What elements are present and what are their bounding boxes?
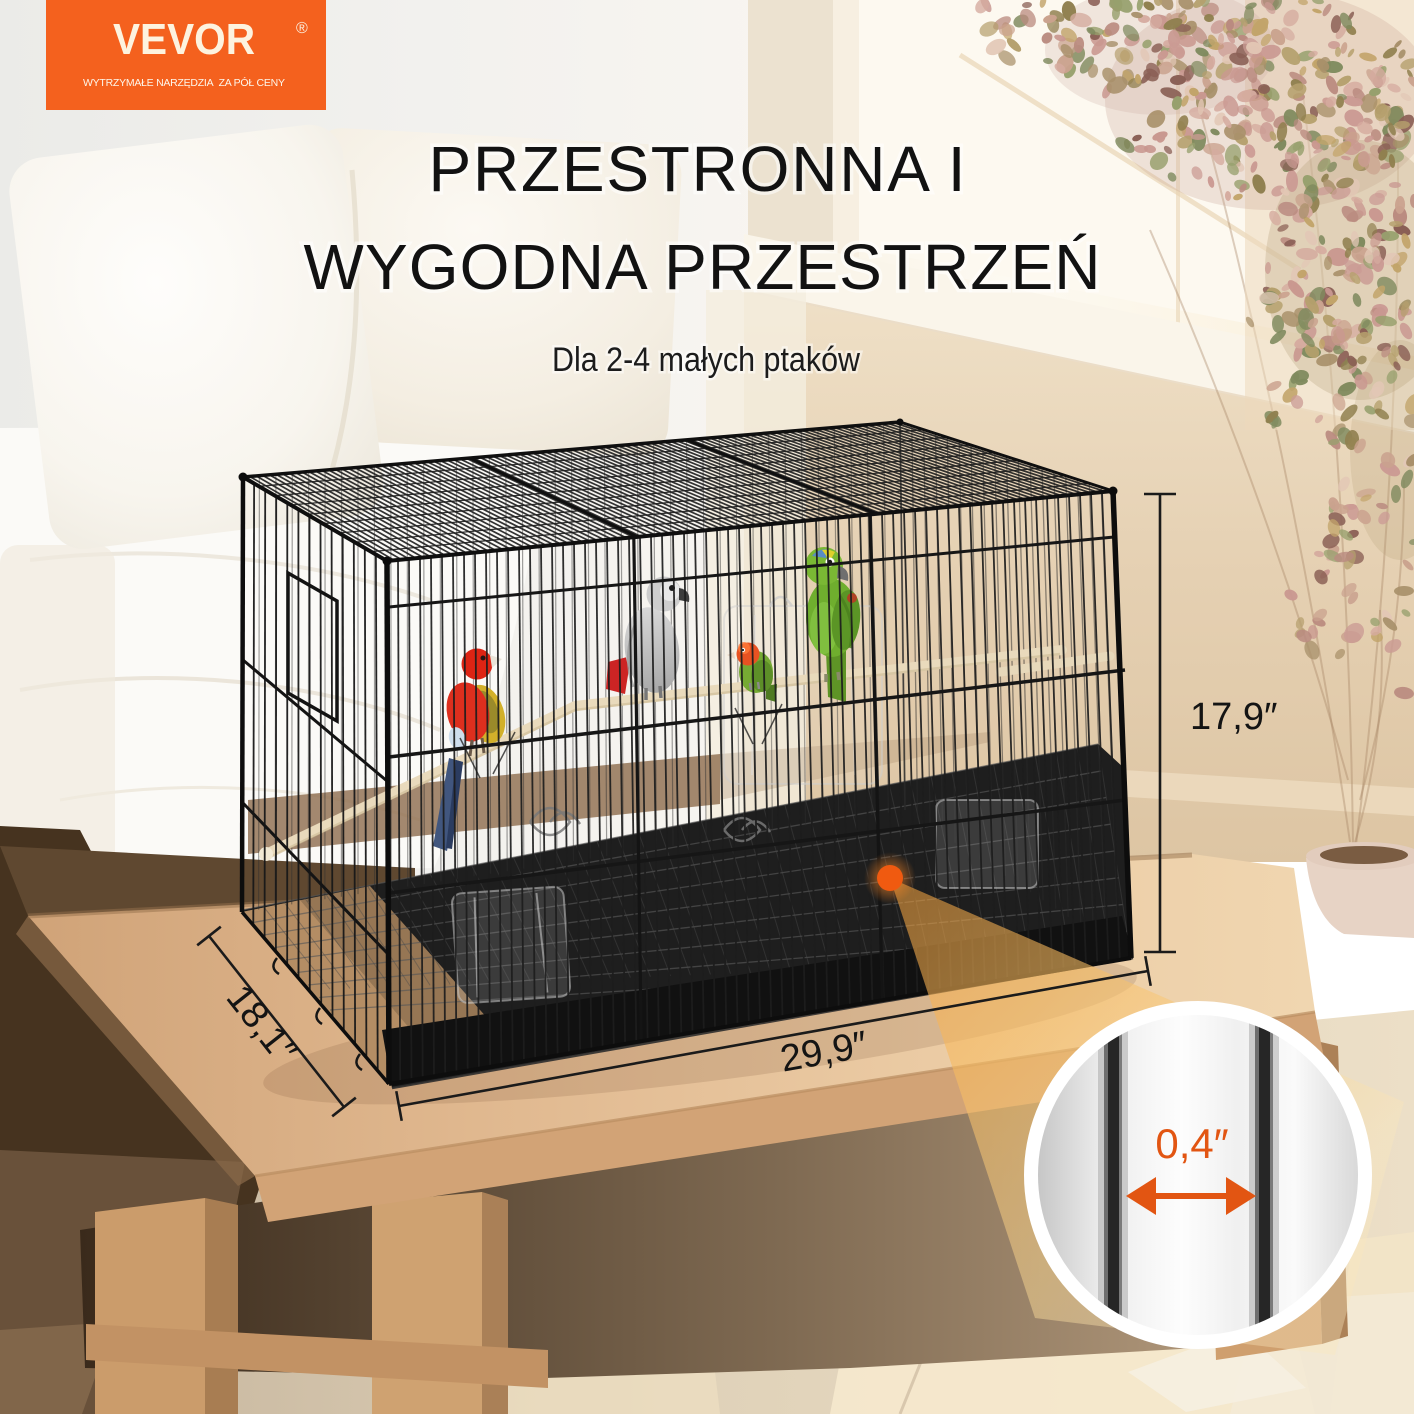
svg-text:Dla 2-4 małych ptaków: Dla 2-4 małych ptaków bbox=[552, 341, 860, 379]
svg-text:VEVOR: VEVOR bbox=[113, 15, 255, 64]
svg-text:0,4″: 0,4″ bbox=[1155, 1120, 1228, 1167]
svg-text:WYGODNA PRZESTRZEŃ: WYGODNA PRZESTRZEŃ bbox=[304, 231, 1101, 303]
svg-text:®: ® bbox=[296, 20, 308, 37]
svg-text:PRZESTRONNA I: PRZESTRONNA I bbox=[429, 133, 966, 205]
svg-text:WYTRZYMAŁE NARZĘDZIA ZA PÓŁ C: WYTRZYMAŁE NARZĘDZIA ZA PÓŁ CENY bbox=[83, 76, 285, 89]
svg-text:17,9″: 17,9″ bbox=[1190, 696, 1277, 738]
